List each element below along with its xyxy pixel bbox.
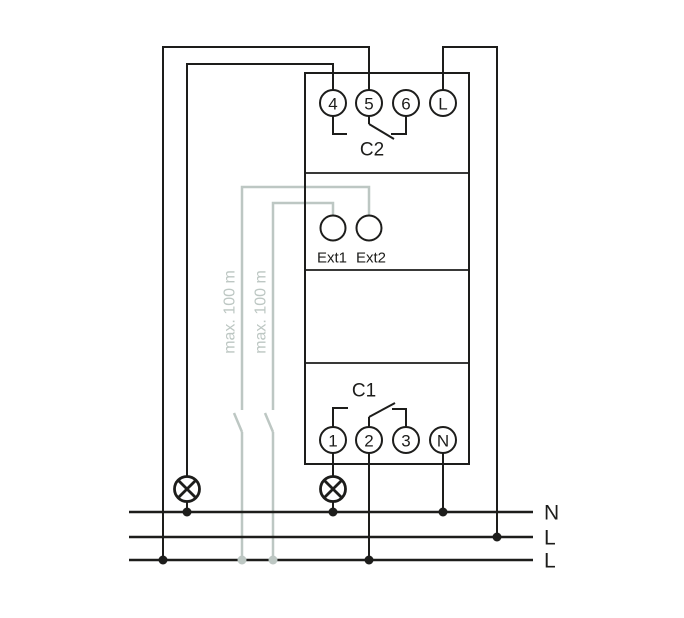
terminal-L-label: L [438,95,447,114]
contact-c2-symbol [333,116,406,139]
c2-contact-4-lead [333,116,347,134]
junction-dot-gray [269,556,278,565]
wiring-diagram-canvas: max. 100 m max. 100 m C2 4 5 6 L Ext1 Ex… [0,0,684,618]
junction-dot [183,508,192,517]
ext2-input [357,216,382,241]
c1-contact-1-lead [333,408,348,427]
junction-dot [329,508,338,517]
wiring-diagram: max. 100 m max. 100 m C2 4 5 6 L Ext1 Ex… [0,0,684,618]
ext-switch-2-blade-icon [234,413,242,432]
junction-dot [493,533,502,542]
c2-contact-6-lead [391,116,406,134]
bus-neutral-label: N [544,502,559,525]
terminal-1-label: 1 [328,432,337,451]
cable-length-note-2: max. 100 m [253,270,270,354]
ext-cable-2 [234,187,369,560]
junction-dot [439,508,448,517]
ext-input-row: Ext1 Ext2 [317,216,386,267]
ext1-input [321,216,346,241]
terminal-4-label: 4 [328,95,337,114]
contact-c1-symbol [333,403,406,427]
terminal-2-label: 2 [364,432,373,451]
terminal-3-label: 3 [401,432,410,451]
c2-switch-blade-icon [369,124,394,139]
c1-switch-blade-icon [369,403,395,417]
terminal-5-label: 5 [364,95,373,114]
bus-phase1-label: L [544,527,556,550]
ext2-label: Ext2 [356,250,386,267]
lamp1-icon [175,477,200,502]
terminal-6-label: 6 [401,95,410,114]
junction-dot [159,556,168,565]
ext-switch-1-blade-icon [265,413,273,432]
bus-phase2-label: L [544,550,556,573]
terminal-N-label: N [437,432,449,451]
ext1-label: Ext1 [317,250,347,267]
terminal-row-bottom: 1 2 3 N [320,427,456,453]
c1-contact-3-lead [392,409,406,427]
terminal-row-top: 4 5 6 L [320,90,456,116]
lamp2-icon [321,477,346,502]
c1-label: C1 [352,381,376,402]
junction-dot [365,556,374,565]
junction-dot-gray [238,556,247,565]
c2-label: C2 [360,140,384,161]
cable-length-note-1: max. 100 m [222,270,239,354]
device-outline [305,73,469,464]
